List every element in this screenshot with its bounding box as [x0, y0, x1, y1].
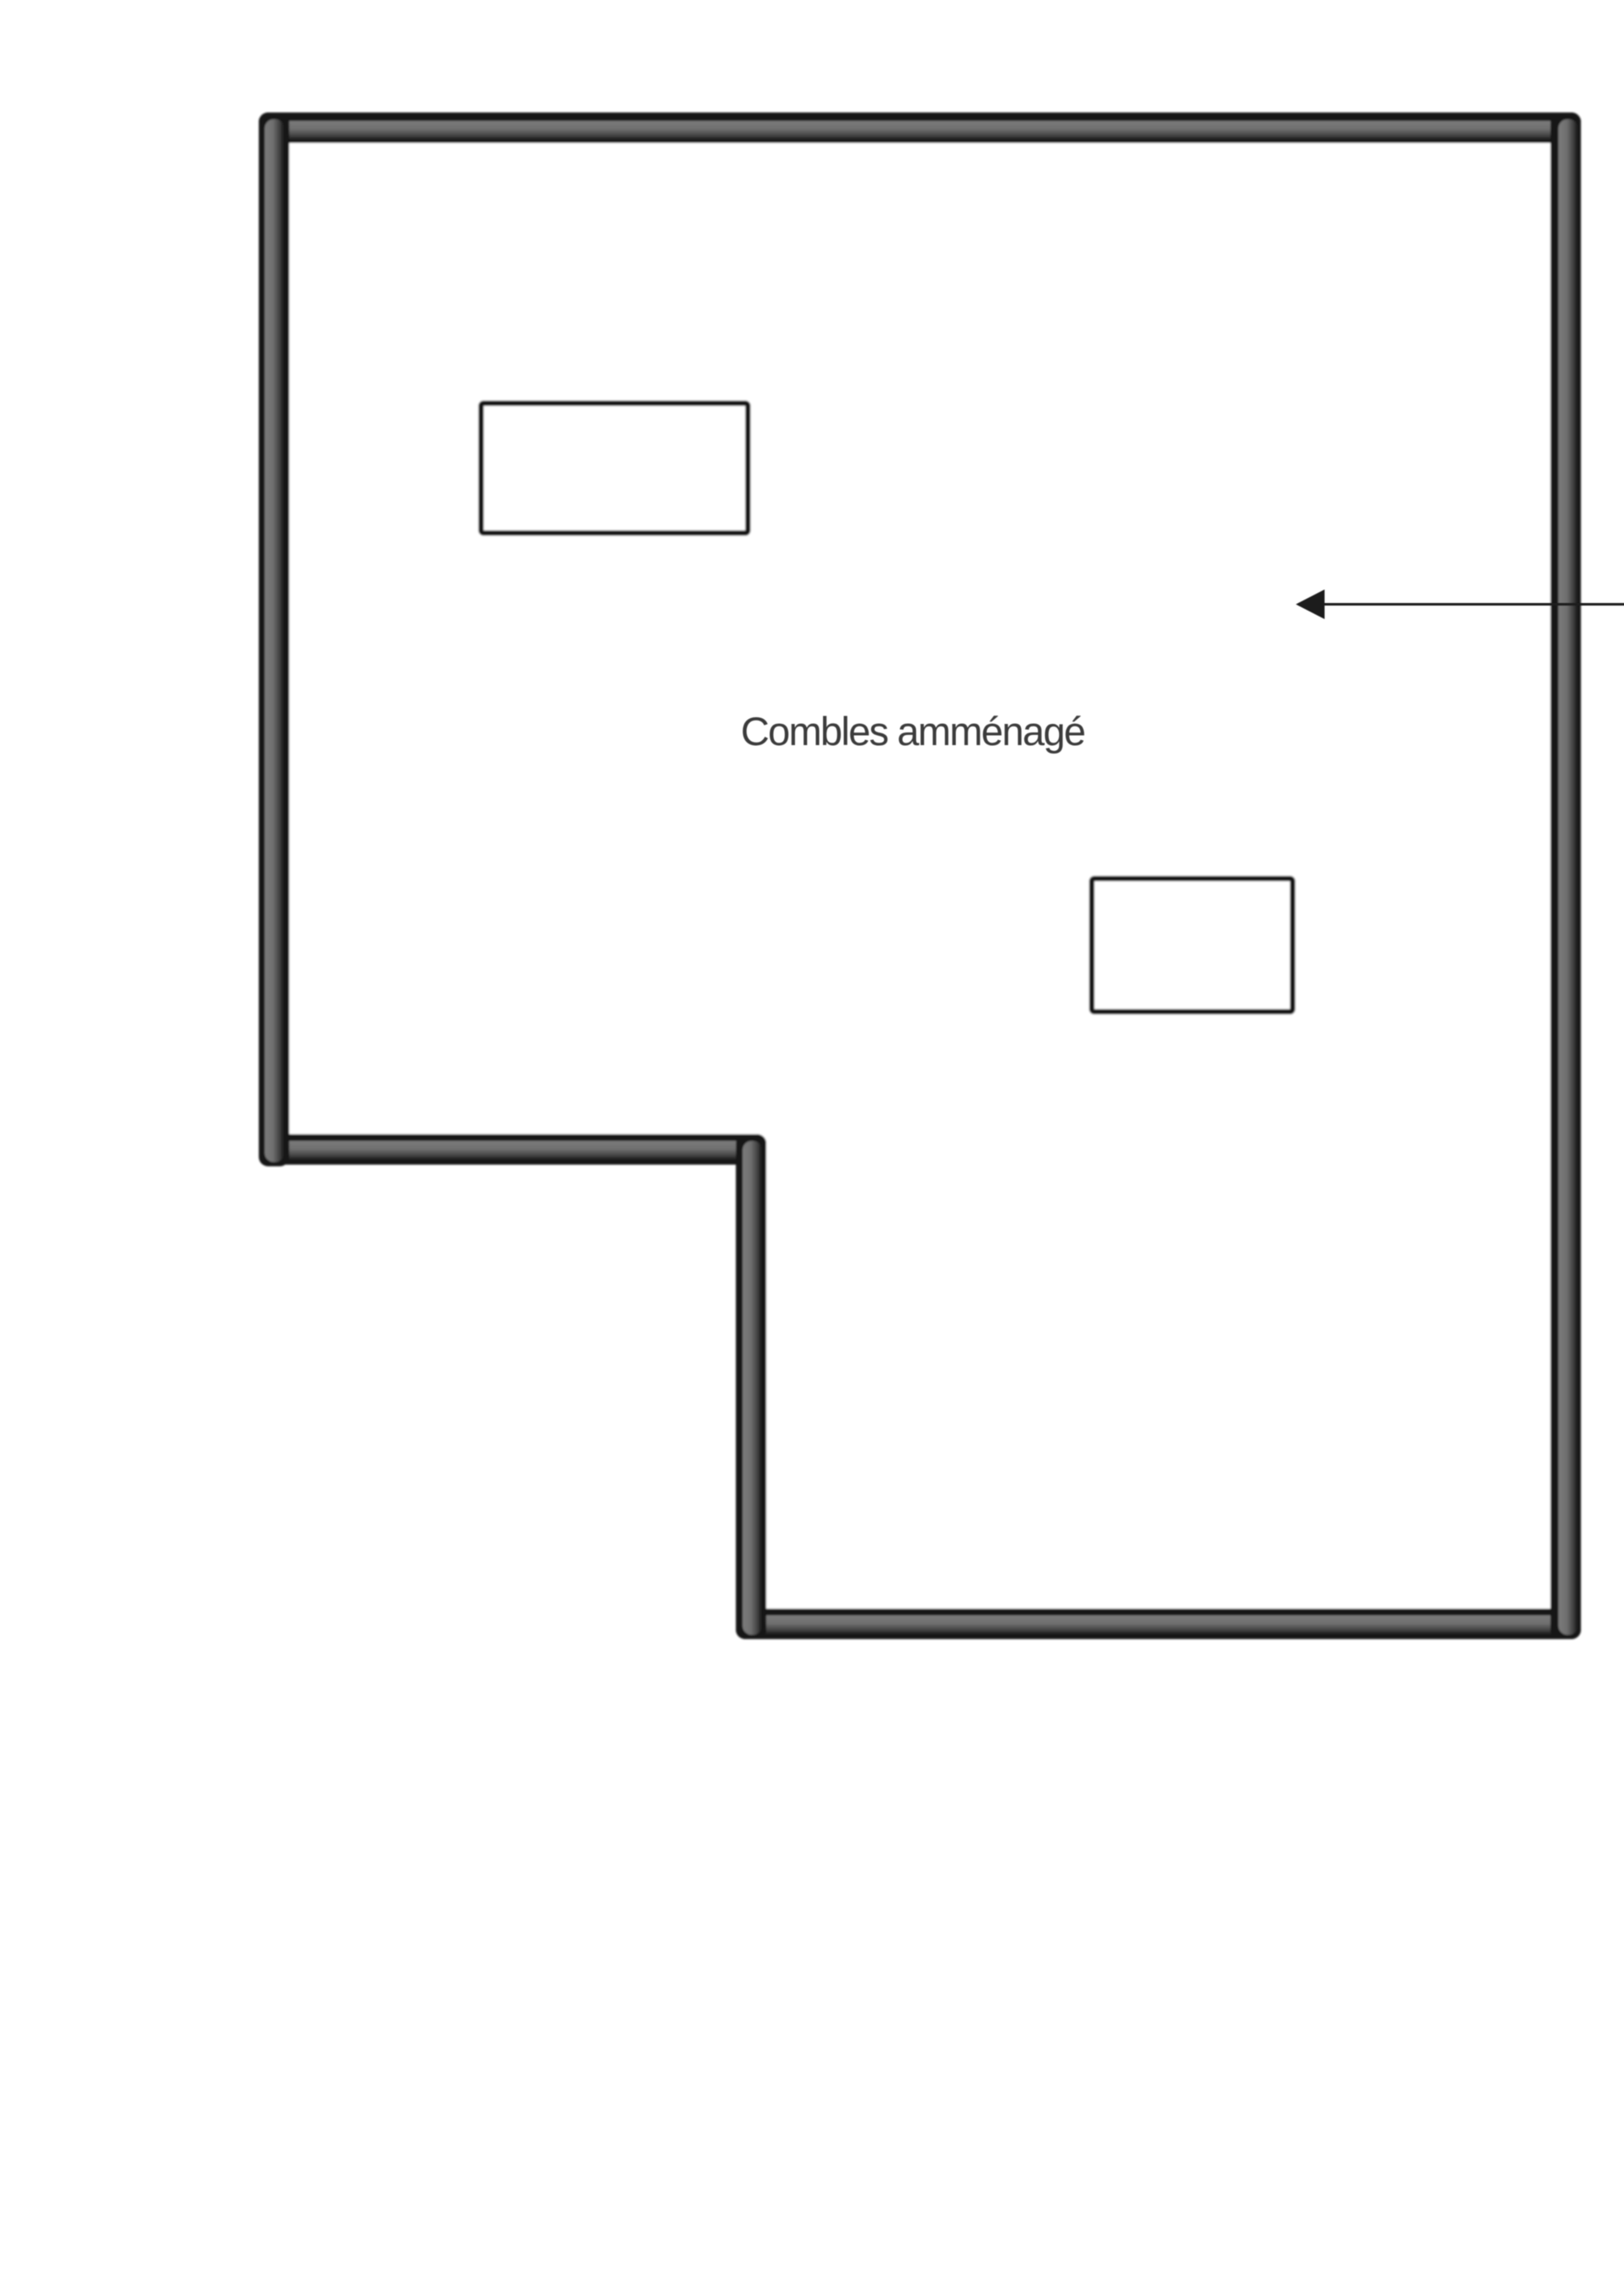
svg-text:Combles amménagé: Combles amménagé	[741, 709, 1085, 754]
